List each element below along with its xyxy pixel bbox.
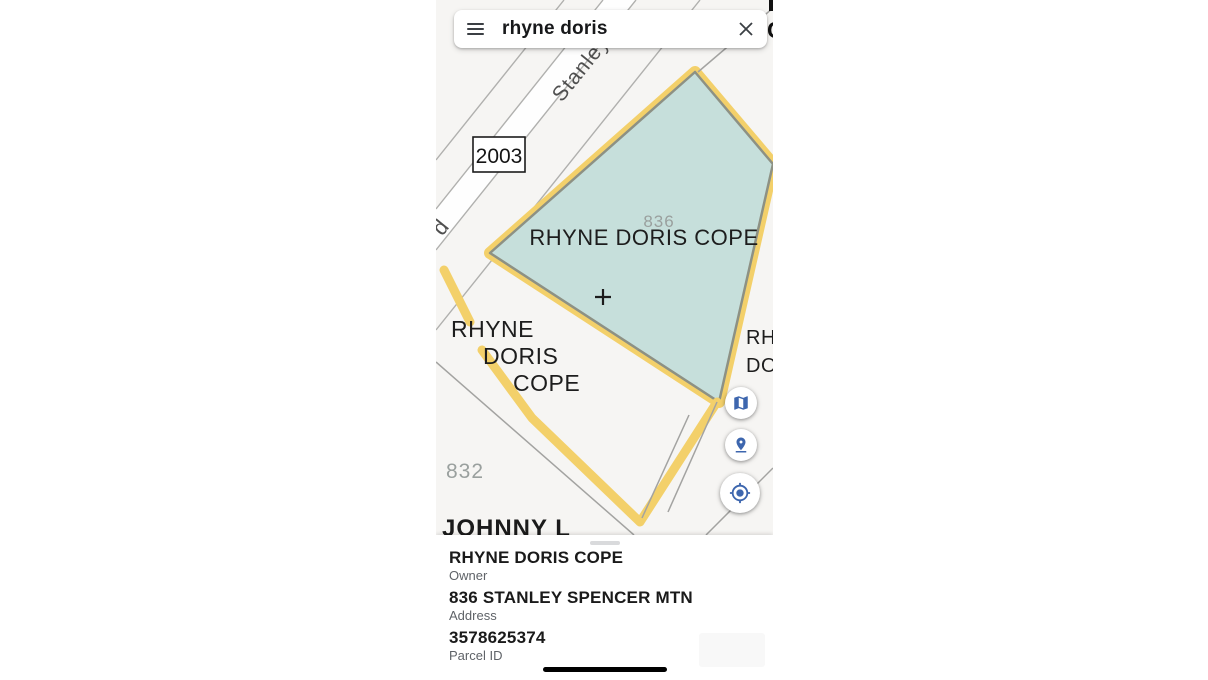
app-frame: Stanley d 2003 836 RHYNE DORIS COPE RHYN… (436, 0, 773, 680)
svg-text:C: C (767, 17, 773, 43)
clear-search-button[interactable] (736, 19, 756, 39)
map-layers-icon (732, 394, 750, 412)
pin-drop-button[interactable] (725, 429, 757, 461)
svg-text:DORIS: DORIS (483, 343, 558, 369)
search-input[interactable]: rhyne doris (502, 18, 608, 40)
pin-drop-icon (732, 436, 750, 454)
bottom-parcel-owner-label: JOHNNY L (442, 515, 571, 535)
map-type-button[interactable] (725, 387, 757, 419)
selected-parcel-owner-label: RHYNE DORIS COPE (529, 225, 758, 250)
address-box-2003: 2003 (473, 137, 525, 172)
map-canvas[interactable]: Stanley d 2003 836 RHYNE DORIS COPE RHYN… (436, 0, 773, 535)
my-location-icon (729, 482, 751, 504)
svg-text:COPE: COPE (513, 370, 580, 396)
svg-text:DO: DO (746, 355, 773, 377)
address-box-text: 2003 (476, 145, 523, 168)
svg-text:RH: RH (746, 327, 773, 349)
close-icon (737, 20, 755, 38)
search-bar[interactable]: rhyne doris (454, 10, 767, 48)
address-row: 836 STANLEY SPENCER MTN Address (449, 588, 773, 624)
my-location-button[interactable] (720, 473, 760, 513)
watermark (699, 633, 765, 667)
parcel-832-label: 832 (446, 460, 484, 483)
parcel-detail-sheet: RHYNE DORIS COPE Owner 836 STANLEY SPENC… (436, 535, 773, 680)
svg-text:RHYNE: RHYNE (451, 316, 534, 342)
system-gesture-bar[interactable] (543, 667, 667, 672)
hamburger-menu-icon[interactable] (467, 20, 485, 38)
owner-value: RHYNE DORIS COPE (449, 548, 773, 568)
owner-row: RHYNE DORIS COPE Owner (449, 548, 773, 584)
address-label: Address (449, 608, 773, 624)
address-value: 836 STANLEY SPENCER MTN (449, 588, 773, 608)
owner-label: Owner (449, 568, 773, 584)
